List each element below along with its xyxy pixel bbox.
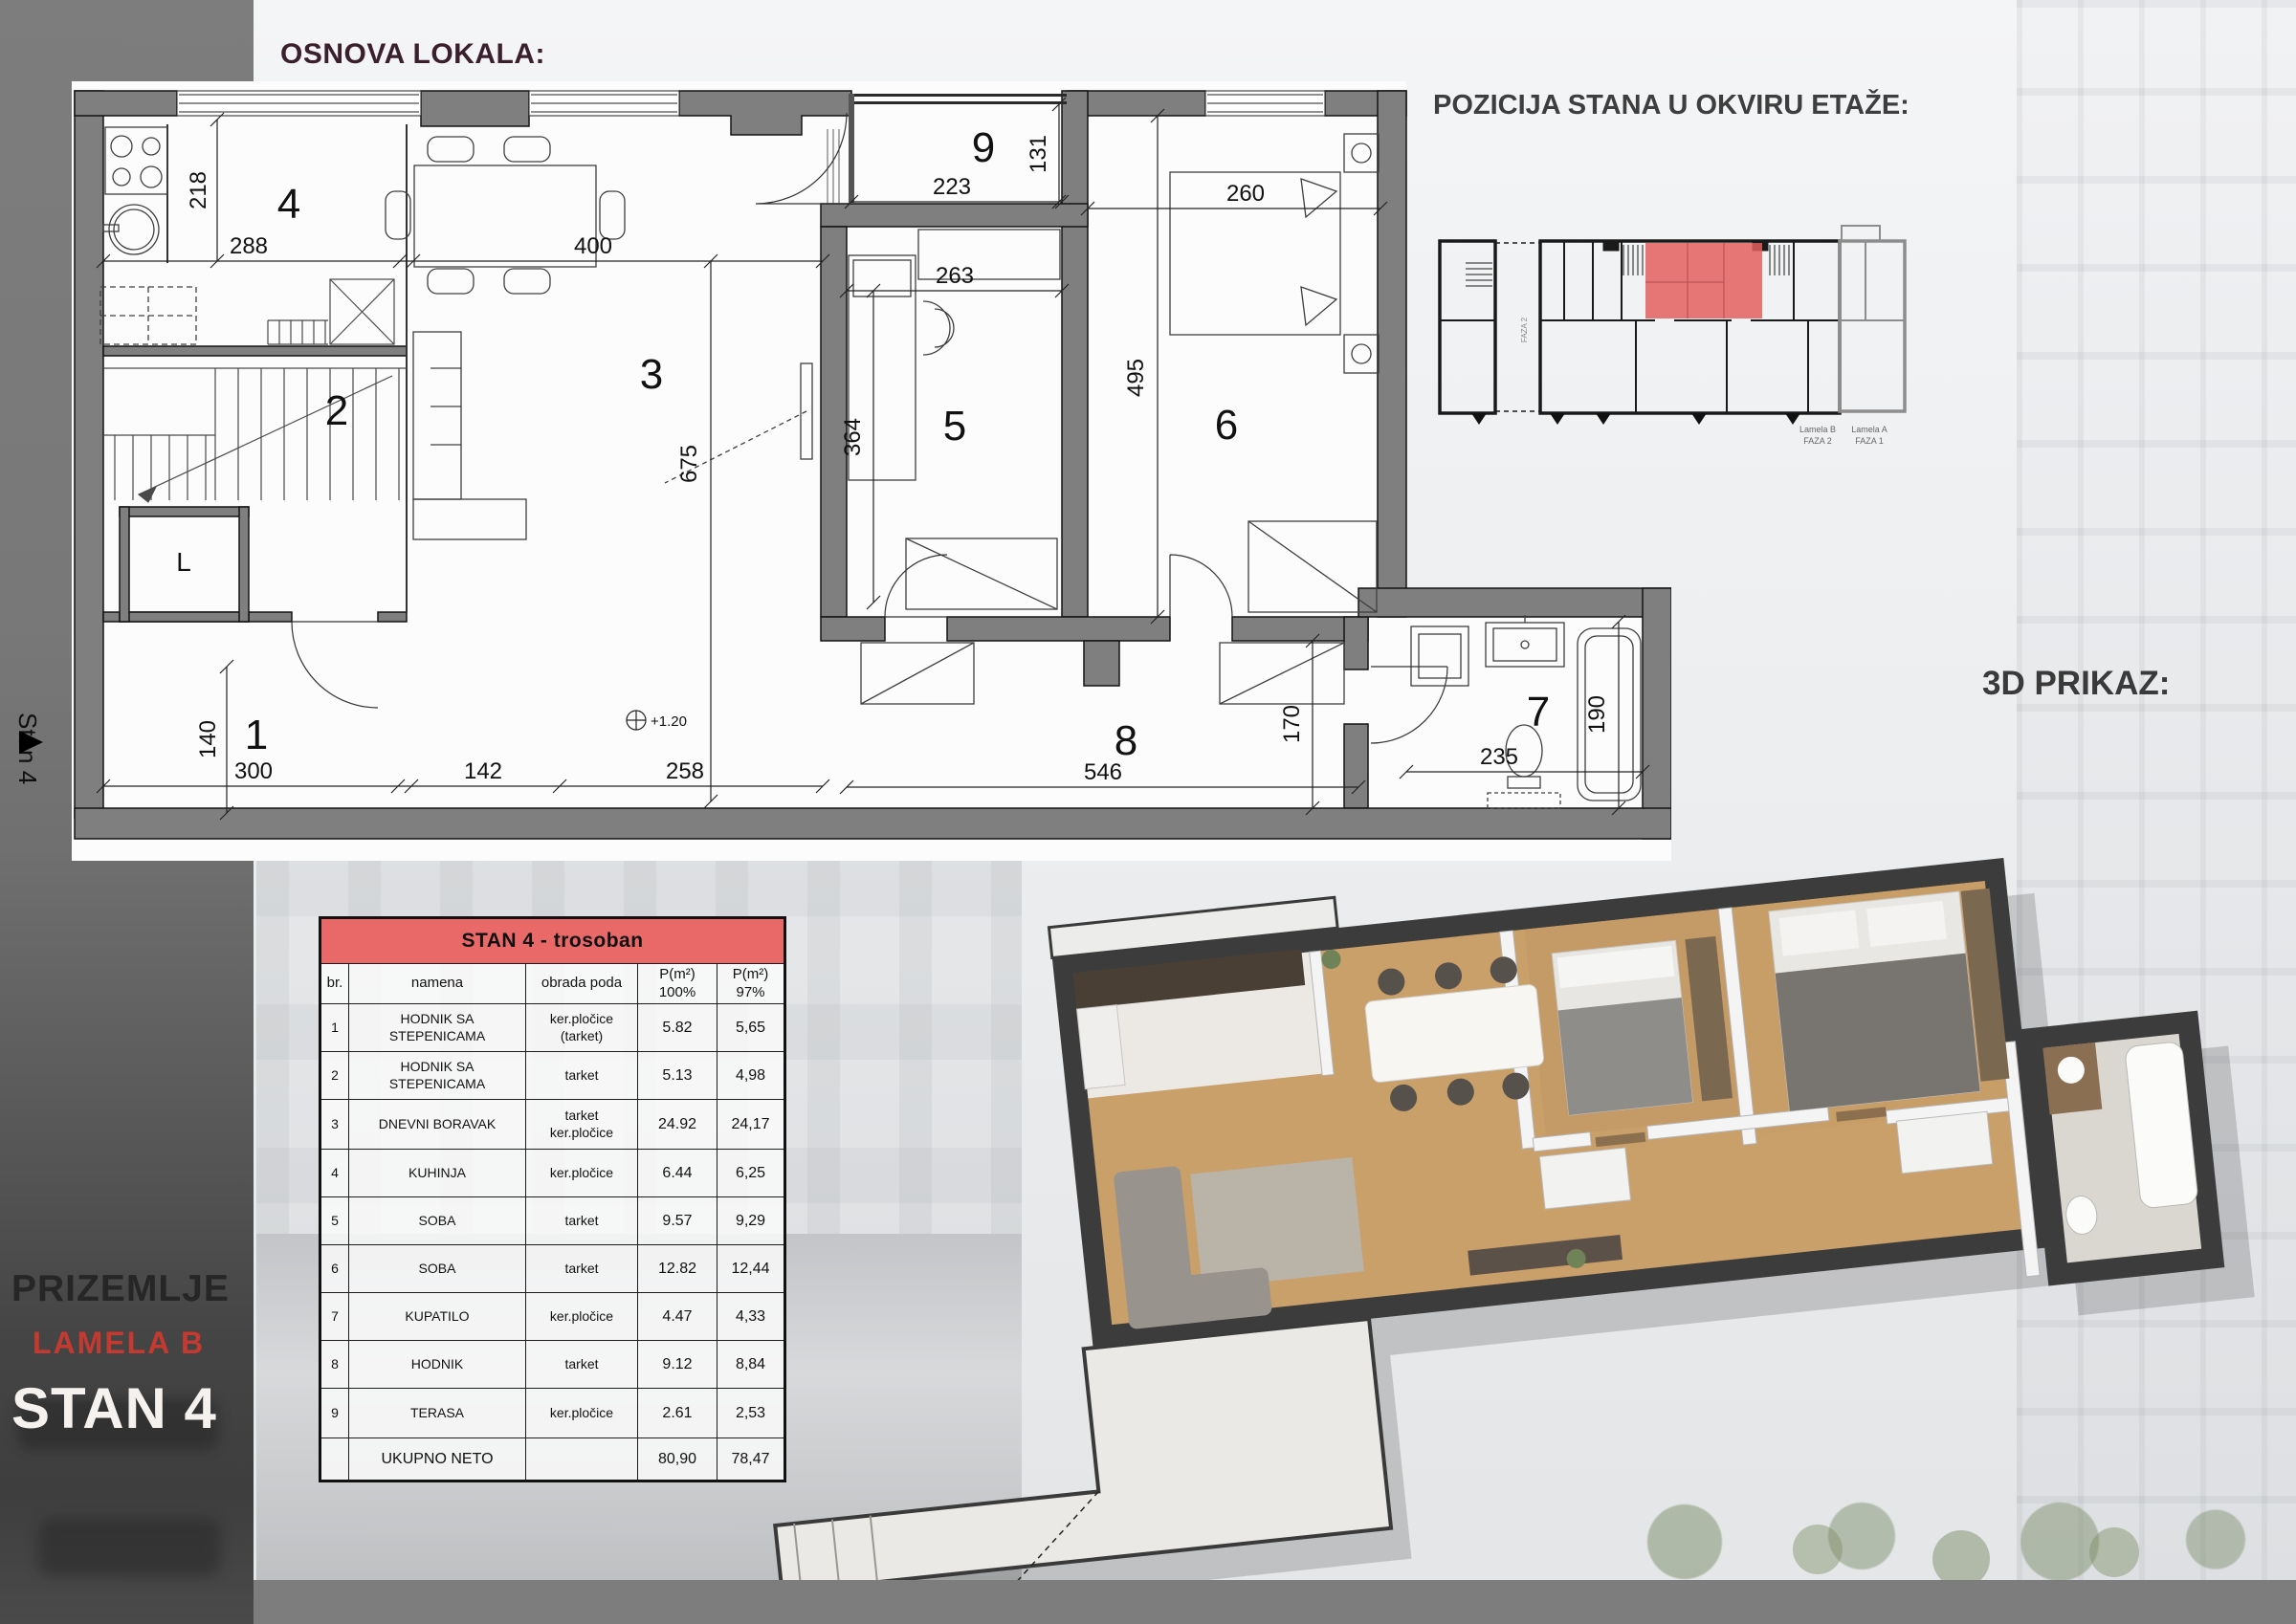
- page: OSNOVA LOKALA: POZICIJA STANA U OKVIRU E…: [0, 0, 2296, 1624]
- col-header-p97: P(m²) 97%: [717, 964, 785, 1004]
- photo-shadow-blob: [38, 1519, 220, 1576]
- room-number: 6: [1215, 402, 1238, 449]
- title-3d-prikaz: 3D PRIKAZ:: [1982, 665, 2170, 703]
- table-row: 1 HODNIK SA STEPENICAMA ker.pločice (tar…: [320, 1004, 785, 1052]
- phase-divider-label: FAZA 2: [1520, 317, 1529, 342]
- col-header-obrada: obrada poda: [526, 964, 638, 1004]
- cell-obrada: ker.pločice: [526, 1150, 638, 1197]
- dimension-label: 364: [840, 418, 866, 456]
- lamela-b-label: Lamela B: [1799, 425, 1836, 434]
- cell-br: 6: [320, 1245, 349, 1293]
- cell-br: 9: [320, 1389, 349, 1438]
- cell-namena: KUHINJA: [349, 1150, 526, 1197]
- cell-p100: 5.13: [638, 1052, 717, 1100]
- dimension-label: 400: [574, 233, 612, 259]
- entrance-triangles: [1471, 413, 1800, 425]
- elevator-label: L: [176, 547, 191, 577]
- room-number: 3: [640, 351, 663, 398]
- cell-br: 7: [320, 1293, 349, 1341]
- cell-br: 5: [320, 1197, 349, 1245]
- cell-namena: SOBA: [349, 1197, 526, 1245]
- cell-namena: DNEVNI BORAVAK: [349, 1100, 526, 1150]
- dimension-label: 142: [464, 758, 502, 784]
- table-row: 2 HODNIK SA STEPENICAMA tarket 5.13 4,98: [320, 1052, 785, 1100]
- room-number: 1: [245, 712, 268, 758]
- cell-p97: 12,44: [717, 1245, 785, 1293]
- cell-obrada: ker.pločice: [526, 1389, 638, 1438]
- cell-p100: 6.44: [638, 1150, 717, 1197]
- dimension-label: 300: [234, 758, 273, 784]
- title-pozicija-stana: POZICIJA STANA U OKVIRU ETAŽE:: [1433, 90, 1910, 121]
- cell-namena: TERASA: [349, 1389, 526, 1438]
- cell-namena: SOBA: [349, 1245, 526, 1293]
- cell-obrada: tarket: [526, 1197, 638, 1245]
- lamela-b-phase: FAZA 2: [1803, 436, 1832, 446]
- room-number: 5: [943, 403, 966, 450]
- side-tab-arrow-icon: [19, 731, 43, 754]
- cell-p97: 2,53: [717, 1389, 785, 1438]
- room-number: 2: [325, 387, 348, 434]
- lamela-a-phase: FAZA 1: [1855, 436, 1884, 446]
- room-number: 7: [1527, 689, 1550, 735]
- footer-band: [254, 1580, 2296, 1624]
- cell-namena: HODNIK SA STEPENICAMA: [349, 1004, 526, 1052]
- cell-obrada: tarket: [526, 1341, 638, 1389]
- cell-p97: 6,25: [717, 1150, 785, 1197]
- room-number: 9: [972, 124, 995, 171]
- cell-namena: HODNIK: [349, 1341, 526, 1389]
- cell-p97: 5,65: [717, 1004, 785, 1052]
- dimension-label: 288: [230, 233, 268, 259]
- dimension-label: 190: [1584, 695, 1610, 734]
- dimension-label: 263: [936, 263, 974, 289]
- total-label: UKUPNO NETO: [349, 1438, 526, 1481]
- dimension-label: 170: [1279, 705, 1305, 743]
- annex-phase1: [1840, 226, 1905, 411]
- table-row: 3 DNEVNI BORAVAK tarket ker.pločice 24.9…: [320, 1100, 785, 1150]
- dimension-label: 131: [1026, 135, 1051, 173]
- cell-namena: KUPATILO: [349, 1293, 526, 1341]
- dimension-label: 260: [1226, 181, 1265, 207]
- dimension-label: 258: [666, 758, 704, 784]
- total-p97: 78,47: [717, 1438, 785, 1481]
- cell-p100: 24.92: [638, 1100, 717, 1150]
- etage-position-plan: FAZA 2 Lamela B FAZA 2 Lamela A FAZA 1: [1416, 172, 2009, 459]
- cell-obrada: tarket ker.pločice: [526, 1100, 638, 1150]
- cell-p97: 9,29: [717, 1197, 785, 1245]
- apartment-highlight: [1645, 243, 1762, 318]
- cell-p100: 12.82: [638, 1245, 717, 1293]
- dimension-label: 223: [933, 174, 971, 200]
- room-number: 4: [277, 181, 300, 228]
- cell-p100: 5.82: [638, 1004, 717, 1052]
- cell-br-empty: [320, 1438, 349, 1481]
- cell-obrada-empty: [526, 1438, 638, 1481]
- table-title: STAN 4 - trosoban: [320, 918, 785, 964]
- dimension-label: 495: [1123, 359, 1149, 397]
- cell-obrada: tarket: [526, 1052, 638, 1100]
- cell-br: 1: [320, 1004, 349, 1052]
- cell-obrada: ker.pločice: [526, 1293, 638, 1341]
- label-unit: STAN 4: [11, 1375, 217, 1441]
- lamela-a-label: Lamela A: [1851, 425, 1888, 434]
- table-row: 4 KUHINJA ker.pločice 6.44 6,25: [320, 1150, 785, 1197]
- label-lamela: LAMELA B: [33, 1326, 205, 1361]
- dimension-label: 235: [1480, 744, 1518, 770]
- table-row: 8 HODNIK tarket 9.12 8,84: [320, 1341, 785, 1389]
- cell-obrada: ker.pločice (tarket): [526, 1004, 638, 1052]
- 3d-render: [622, 830, 2296, 1614]
- table-total-row: UKUPNO NETO 80,90 78,47: [320, 1438, 785, 1481]
- cell-p97: 24,17: [717, 1100, 785, 1150]
- area-table: STAN 4 - trosoban br. namena obrada poda…: [319, 916, 786, 1482]
- cell-br: 2: [320, 1052, 349, 1100]
- level-marker: +1.20: [627, 711, 687, 730]
- cell-br: 4: [320, 1150, 349, 1197]
- level-mark-label: +1.20: [651, 713, 687, 730]
- cell-obrada: tarket: [526, 1245, 638, 1293]
- cell-br: 8: [320, 1341, 349, 1389]
- cell-p100: 9.12: [638, 1341, 717, 1389]
- dimension-label: 675: [676, 445, 702, 483]
- title-osnova-lokala: OSNOVA LOKALA:: [280, 38, 545, 71]
- table-row: 9 TERASA ker.pločice 2.61 2,53: [320, 1389, 785, 1438]
- table-row: 6 SOBA tarket 12.82 12,44: [320, 1245, 785, 1293]
- col-header-br: br.: [320, 964, 349, 1004]
- label-level: PRIZEMLJE: [11, 1268, 230, 1310]
- cell-p100: 4.47: [638, 1293, 717, 1341]
- table-row: 7 KUPATILO ker.pločice 4.47 4,33: [320, 1293, 785, 1341]
- cell-p100: 2.61: [638, 1389, 717, 1438]
- cell-p97: 4,33: [717, 1293, 785, 1341]
- cell-p97: 4,98: [717, 1052, 785, 1100]
- dimension-label: 140: [195, 720, 221, 758]
- cell-p100: 9.57: [638, 1197, 717, 1245]
- cell-br: 3: [320, 1100, 349, 1150]
- cell-p97: 8,84: [717, 1341, 785, 1389]
- col-header-p100: P(m²) 100%: [638, 964, 717, 1004]
- dimension-label: 218: [186, 171, 211, 209]
- table-row: 5 SOBA tarket 9.57 9,29: [320, 1197, 785, 1245]
- cell-namena: HODNIK SA STEPENICAMA: [349, 1052, 526, 1100]
- col-header-namena: namena: [349, 964, 526, 1004]
- room-number: 8: [1115, 717, 1137, 764]
- total-p100: 80,90: [638, 1438, 717, 1481]
